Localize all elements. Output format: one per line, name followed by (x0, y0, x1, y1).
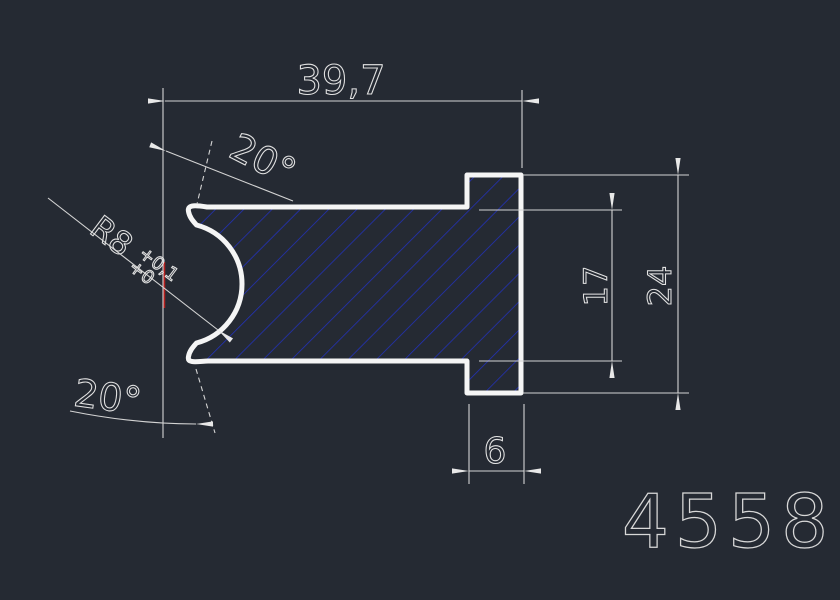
dim-overall-height-value: 24 (641, 266, 679, 307)
dim-flange-thickness-value: 6 (484, 431, 507, 472)
dim-inner-height-value: 17 (577, 266, 615, 307)
cad-viewport: 39,7 20° 20° R8 +0,1 +0 (0, 0, 840, 600)
part-number-label: 4558 (622, 479, 834, 565)
dim-overall-width-value: 39,7 (296, 58, 385, 104)
cad-drawing: 39,7 20° 20° R8 +0,1 +0 (0, 0, 840, 600)
dim-bottom-angle-value: 20° (71, 371, 144, 424)
